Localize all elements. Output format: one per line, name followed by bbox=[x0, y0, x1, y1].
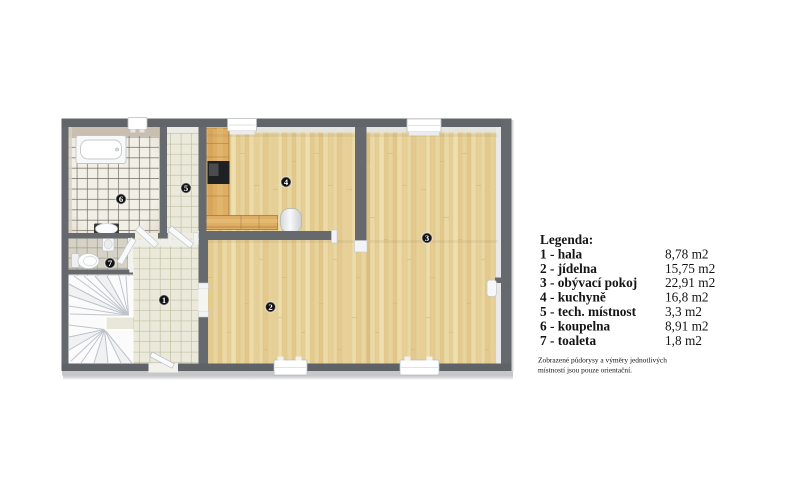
svg-text:Zobrazené půdorysy a výměry je: Zobrazené půdorysy a výměry jednotlivých bbox=[538, 356, 667, 365]
svg-text:3,3 m2: 3,3 m2 bbox=[665, 304, 702, 319]
svg-text:8,91 m2: 8,91 m2 bbox=[665, 318, 709, 333]
svg-text:místností jsou pouze orientačn: místností jsou pouze orientační. bbox=[538, 365, 632, 374]
svg-text:1,8 m2: 1,8 m2 bbox=[665, 333, 702, 348]
svg-text:5 - tech. místnost: 5 - tech. místnost bbox=[540, 304, 637, 319]
svg-text:7: 7 bbox=[108, 258, 113, 268]
svg-text:2: 2 bbox=[268, 302, 272, 312]
svg-text:1: 1 bbox=[162, 295, 166, 305]
svg-text:1 - hala: 1 - hala bbox=[540, 246, 582, 261]
svg-text:8,78 m2: 8,78 m2 bbox=[665, 246, 709, 261]
svg-text:3: 3 bbox=[425, 233, 429, 243]
svg-text:Legenda:: Legenda: bbox=[540, 232, 593, 247]
svg-text:2 - jídelna: 2 - jídelna bbox=[540, 261, 597, 276]
svg-text:22,91 m2: 22,91 m2 bbox=[665, 275, 715, 290]
svg-text:7 - toaleta: 7 - toaleta bbox=[540, 333, 596, 348]
svg-text:4 - kuchyně: 4 - kuchyně bbox=[540, 290, 606, 305]
svg-text:4: 4 bbox=[284, 177, 289, 187]
svg-text:5: 5 bbox=[184, 183, 188, 193]
svg-text:6: 6 bbox=[119, 194, 124, 204]
svg-text:3 - obývací pokoj: 3 - obývací pokoj bbox=[540, 275, 637, 290]
svg-text:15,75 m2: 15,75 m2 bbox=[665, 261, 715, 276]
svg-text:6 - koupelna: 6 - koupelna bbox=[540, 318, 611, 333]
svg-text:16,8 m2: 16,8 m2 bbox=[665, 290, 709, 305]
